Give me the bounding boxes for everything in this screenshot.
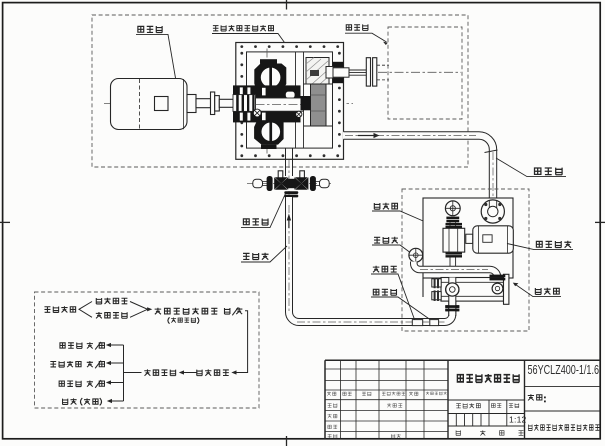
svg-text:56YCLZ400-1/1.6: 56YCLZ400-1/1.6 [528, 363, 600, 377]
svg-text:1:12: 1:12 [509, 415, 527, 425]
